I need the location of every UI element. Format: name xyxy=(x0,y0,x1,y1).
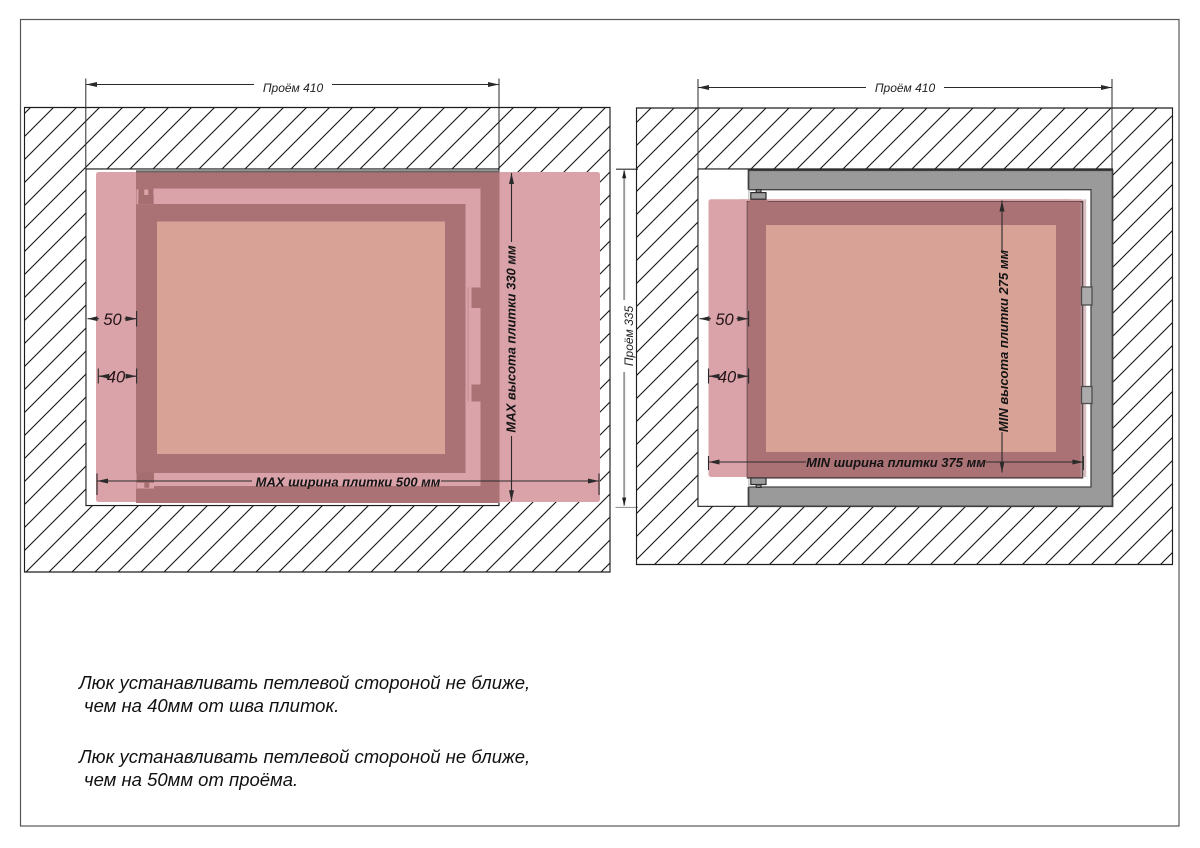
svg-text:Проём 335: Проём 335 xyxy=(622,306,636,367)
svg-text:40: 40 xyxy=(718,369,737,387)
svg-text:Проём 410: Проём 410 xyxy=(263,81,324,95)
svg-text:MIN высота плитки 275 мм: MIN высота плитки 275 мм xyxy=(996,250,1011,433)
svg-text:MAX ширина плитки 500 мм: MAX ширина плитки 500 мм xyxy=(256,474,441,489)
svg-text:Люк устанавливать петлевой сто: Люк устанавливать петлевой стороной не б… xyxy=(78,746,530,767)
svg-text:Проём 410: Проём 410 xyxy=(875,81,936,95)
svg-text:Люк устанавливать петлевой сто: Люк устанавливать петлевой стороной не б… xyxy=(78,672,530,693)
svg-text:MIN ширина плитки 375 мм: MIN ширина плитки 375 мм xyxy=(806,455,986,470)
svg-text:40: 40 xyxy=(107,369,126,387)
svg-text:чем на 50мм от проёма.: чем на 50мм от проёма. xyxy=(84,769,298,790)
svg-text:50: 50 xyxy=(715,311,734,329)
svg-text:чем на 40мм от шва плиток.: чем на 40мм от шва плиток. xyxy=(84,695,339,716)
svg-text:MAX высота плитки 330 мм: MAX высота плитки 330 мм xyxy=(504,245,519,433)
svg-text:50: 50 xyxy=(103,311,122,329)
